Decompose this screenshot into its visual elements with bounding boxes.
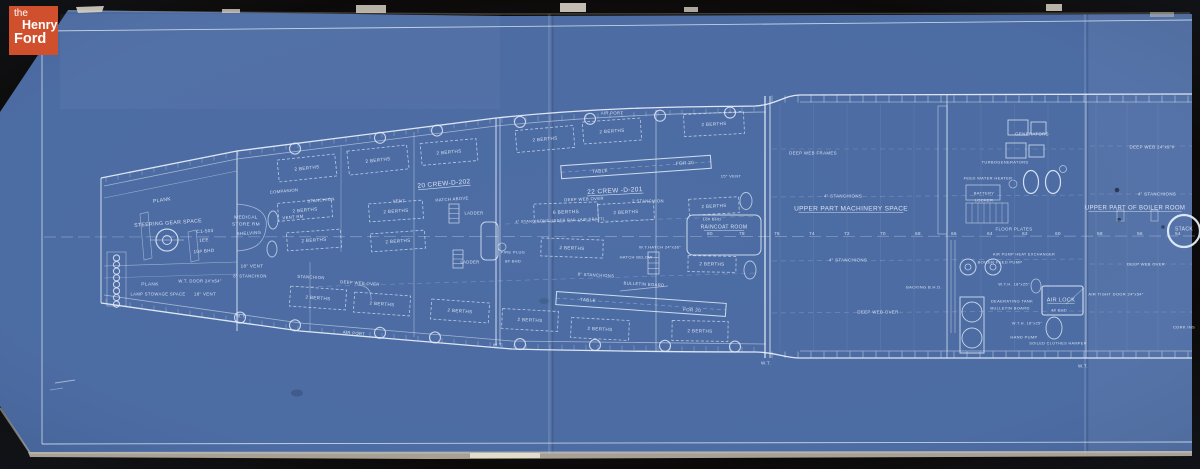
- svg-text:BACKING B.H.D.: BACKING B.H.D.: [906, 285, 942, 290]
- svg-text:4" STANCHIONS: 4" STANCHIONS: [824, 194, 862, 199]
- plan-label: RAINCOAT ROOM: [701, 225, 748, 231]
- svg-text:RAINCOAT ROOM: RAINCOAT ROOM: [701, 225, 748, 231]
- sheet-background: [0, 0, 1200, 469]
- svg-text:MEDICAL: MEDICAL: [234, 215, 258, 221]
- svg-text:W.T.: W.T.: [493, 343, 503, 348]
- frame-number: 56: [1137, 231, 1143, 236]
- frame-number: 66: [951, 231, 957, 236]
- svg-text:FEED WATER HEATER: FEED WATER HEATER: [964, 176, 1013, 181]
- frame-number: 76: [774, 231, 780, 236]
- svg-text:AIR PORT: AIR PORT: [601, 111, 624, 116]
- svg-text:W.T. DOOR 24"x54": W.T. DOOR 24"x54": [178, 279, 222, 284]
- plan-label: 4# BHD: [1051, 308, 1067, 313]
- plan-label: AIR PUMP HEAT EXCHANGER: [993, 253, 1055, 257]
- plan-label: 18" VENT: [241, 264, 264, 269]
- svg-text:AIR LOCK: AIR LOCK: [1047, 298, 1075, 304]
- plan-label: DEEP WEB OVER: [857, 310, 898, 315]
- svg-text:W.T.: W.T.: [236, 314, 246, 319]
- svg-text:FIRE PLUG: FIRE PLUG: [501, 250, 525, 255]
- frame-number: 58: [1097, 231, 1103, 236]
- plan-label: VENT: [393, 199, 406, 204]
- svg-text:LADDER: LADDER: [464, 211, 483, 216]
- plan-label: 10# BHD: [703, 217, 722, 222]
- svg-text:18" VENT: 18" VENT: [194, 292, 216, 297]
- plan-label: 2 STANCHION: [632, 199, 664, 204]
- svg-text:LADDER: LADDER: [460, 260, 479, 265]
- svg-text:W.T.HATCH 24"x36": W.T.HATCH 24"x36": [639, 245, 681, 250]
- svg-text:LOCKER: LOCKER: [975, 198, 994, 203]
- plan-label: HAND PUMP: [1010, 335, 1037, 340]
- plan-label: 4" STANCHIONS: [1138, 192, 1176, 197]
- plan-label: AIR TIGHT DOOR 24"x54": [1088, 292, 1144, 297]
- plan-label: UPPER PART MACHINERY SPACE: [794, 206, 908, 213]
- plan-label: W.T.: [236, 314, 246, 319]
- svg-text:1EE: 1EE: [199, 237, 209, 243]
- plan-label: 8# BHD: [505, 259, 521, 264]
- svg-text:W.T.: W.T.: [761, 361, 771, 366]
- svg-text:CORK INS: CORK INS: [1173, 325, 1195, 330]
- svg-text:2 BERTHS: 2 BERTHS: [559, 245, 584, 251]
- plan-label: DEAERATING TANK: [991, 299, 1033, 304]
- plan-label: BULLETIN BOARD: [990, 306, 1029, 311]
- svg-text:GENERATORS: GENERATORS: [1015, 132, 1049, 137]
- svg-text:LAMP STOWAGE SPACE: LAMP STOWAGE SPACE: [130, 292, 185, 297]
- plan-label: DEEP WEB OVER: [1127, 262, 1165, 267]
- frame-number: 60: [1055, 231, 1061, 236]
- svg-text:STORE RM: STORE RM: [232, 222, 260, 228]
- svg-text:DEAERATING TANK: DEAERATING TANK: [991, 299, 1033, 304]
- svg-text:4" STANCHIONS: 4" STANCHIONS: [829, 258, 867, 263]
- plan-label: SOILED CLOTHES HAMPER: [1029, 342, 1087, 346]
- svg-text:2 BERTHS: 2 BERTHS: [687, 328, 712, 333]
- svg-text:BATTERY: BATTERY: [974, 191, 995, 196]
- plan-label: STORE RM: [232, 222, 260, 228]
- plan-label: AIR LOCK: [1047, 298, 1075, 304]
- frame-number: 80: [707, 231, 713, 236]
- svg-text:UPPER PART MACHINERY SPACE: UPPER PART MACHINERY SPACE: [794, 206, 908, 213]
- svg-text:SOILED CLOTHES HAMPER: SOILED CLOTHES HAMPER: [1029, 342, 1087, 346]
- svg-text:W.T.H. 18"x25": W.T.H. 18"x25": [1012, 322, 1042, 326]
- svg-text:HATCH BELOW: HATCH BELOW: [620, 255, 653, 260]
- plan-label: 8" STANCHION: [233, 274, 267, 279]
- svg-text:4" STANCHIONS: 4" STANCHIONS: [1138, 192, 1176, 197]
- plan-label: W.T.: [1078, 364, 1088, 369]
- blueprint-plan: PLANKSTEERING GEAR SPACEC1-5031EE10# BHD…: [0, 0, 1200, 469]
- plan-label: 4" STANCHIONS: [829, 258, 867, 263]
- frame-number: 62: [1022, 231, 1028, 236]
- svg-text:DEEP WEB OVER: DEEP WEB OVER: [857, 310, 898, 315]
- svg-text:8" STANCHION: 8" STANCHION: [233, 274, 267, 279]
- plan-label: W.T.HATCH 24"x36": [639, 245, 681, 250]
- svg-text:2 STANCHION: 2 STANCHION: [632, 199, 664, 204]
- svg-text:10# BHD: 10# BHD: [703, 217, 722, 222]
- svg-text:15" VENT: 15" VENT: [721, 174, 742, 179]
- svg-text:DEEP WEB OVER: DEEP WEB OVER: [1127, 262, 1165, 267]
- plan-label: LADDER: [464, 211, 483, 216]
- plan-label: FEED WATER HEATER: [964, 176, 1013, 181]
- logo-line-ford: Ford: [14, 32, 58, 47]
- plan-label: DEEP WEB FRAMES: [789, 151, 837, 156]
- svg-text:DEEP WEB 24"x9"#: DEEP WEB 24"x9"#: [1130, 145, 1175, 150]
- frame-number: 70: [880, 231, 886, 236]
- plan-label: TURBOGENERATORS: [982, 160, 1029, 165]
- svg-text:PLANK: PLANK: [141, 282, 159, 288]
- svg-text:2 BERTHS: 2 BERTHS: [699, 261, 724, 266]
- plan-label: W.T.: [761, 361, 771, 366]
- plan-label: BOILER FEED PUMP: [978, 260, 1023, 265]
- svg-text:DEEP WEB FRAMES: DEEP WEB FRAMES: [789, 151, 837, 156]
- plan-label: W.T. DOOR 24"x54": [178, 279, 222, 284]
- plan-label: GENERATORS: [1015, 132, 1049, 137]
- svg-text:BULLETIN BOARD: BULLETIN BOARD: [990, 306, 1029, 311]
- plan-label: HATCH BELOW: [620, 255, 653, 260]
- frame-number: 64: [987, 231, 993, 236]
- henry-ford-logo: the Henry Ford: [9, 6, 58, 55]
- svg-text:W.T.: W.T.: [1078, 364, 1088, 369]
- photo-stage: the Henry Ford: [0, 0, 1200, 469]
- plan-label: DEEP WEB 24"x9"#: [1130, 145, 1175, 150]
- svg-text:UPPER PART OF BOILER ROOM: UPPER PART OF BOILER ROOM: [1085, 206, 1185, 212]
- svg-text:4# BHD: 4# BHD: [1051, 308, 1067, 313]
- plan-label: LADDER: [460, 260, 479, 265]
- plan-label: BACKING B.H.D.: [906, 285, 942, 290]
- plan-label: MEDICAL: [234, 215, 258, 221]
- svg-text:6 BERTHS: 6 BERTHS: [553, 209, 579, 216]
- plan-label: 18" VENT: [194, 292, 216, 297]
- plan-label: W.T.H. 18"x25": [998, 282, 1030, 287]
- plan-label: 1EE: [199, 237, 209, 243]
- svg-text:VENT: VENT: [393, 199, 406, 204]
- svg-text:AIR TIGHT DOOR 24"x54": AIR TIGHT DOOR 24"x54": [1088, 292, 1144, 297]
- plan-label: 15" VENT: [721, 174, 742, 179]
- svg-text:HAND PUMP: HAND PUMP: [1010, 335, 1037, 340]
- frame-number: 68: [915, 231, 921, 236]
- plan-label: LAMP STOWAGE SPACE: [130, 292, 185, 297]
- frame-number: 54: [1175, 231, 1181, 236]
- plan-label: PLANK: [141, 282, 159, 288]
- plan-label: FIRE PLUG: [501, 250, 525, 255]
- svg-text:8# BHD: 8# BHD: [505, 259, 521, 264]
- svg-text:BOILER FEED PUMP: BOILER FEED PUMP: [978, 260, 1023, 265]
- plan-label: UPPER PART OF BOILER ROOM: [1085, 206, 1185, 212]
- plan-label: CORK INS: [1173, 325, 1195, 330]
- frame-number: 74: [809, 231, 815, 236]
- plan-label: LOCKER: [975, 198, 994, 203]
- frame-number: 78: [739, 231, 745, 236]
- svg-text:AIR PUMP HEAT EXCHANGER: AIR PUMP HEAT EXCHANGER: [993, 253, 1055, 257]
- svg-text:W.T.H. 18"x25": W.T.H. 18"x25": [998, 282, 1030, 287]
- svg-text:18" VENT: 18" VENT: [241, 264, 264, 269]
- plan-label: 4" STANCHIONS: [824, 194, 862, 199]
- plan-label: W.T.: [493, 343, 503, 348]
- plan-label: BATTERY: [974, 191, 995, 196]
- svg-text:TURBOGENERATORS: TURBOGENERATORS: [982, 160, 1029, 165]
- plan-label: AIR PORT: [601, 111, 624, 116]
- frame-number: 72: [844, 231, 850, 236]
- plan-label: W.T.H. 18"x25": [1012, 322, 1042, 326]
